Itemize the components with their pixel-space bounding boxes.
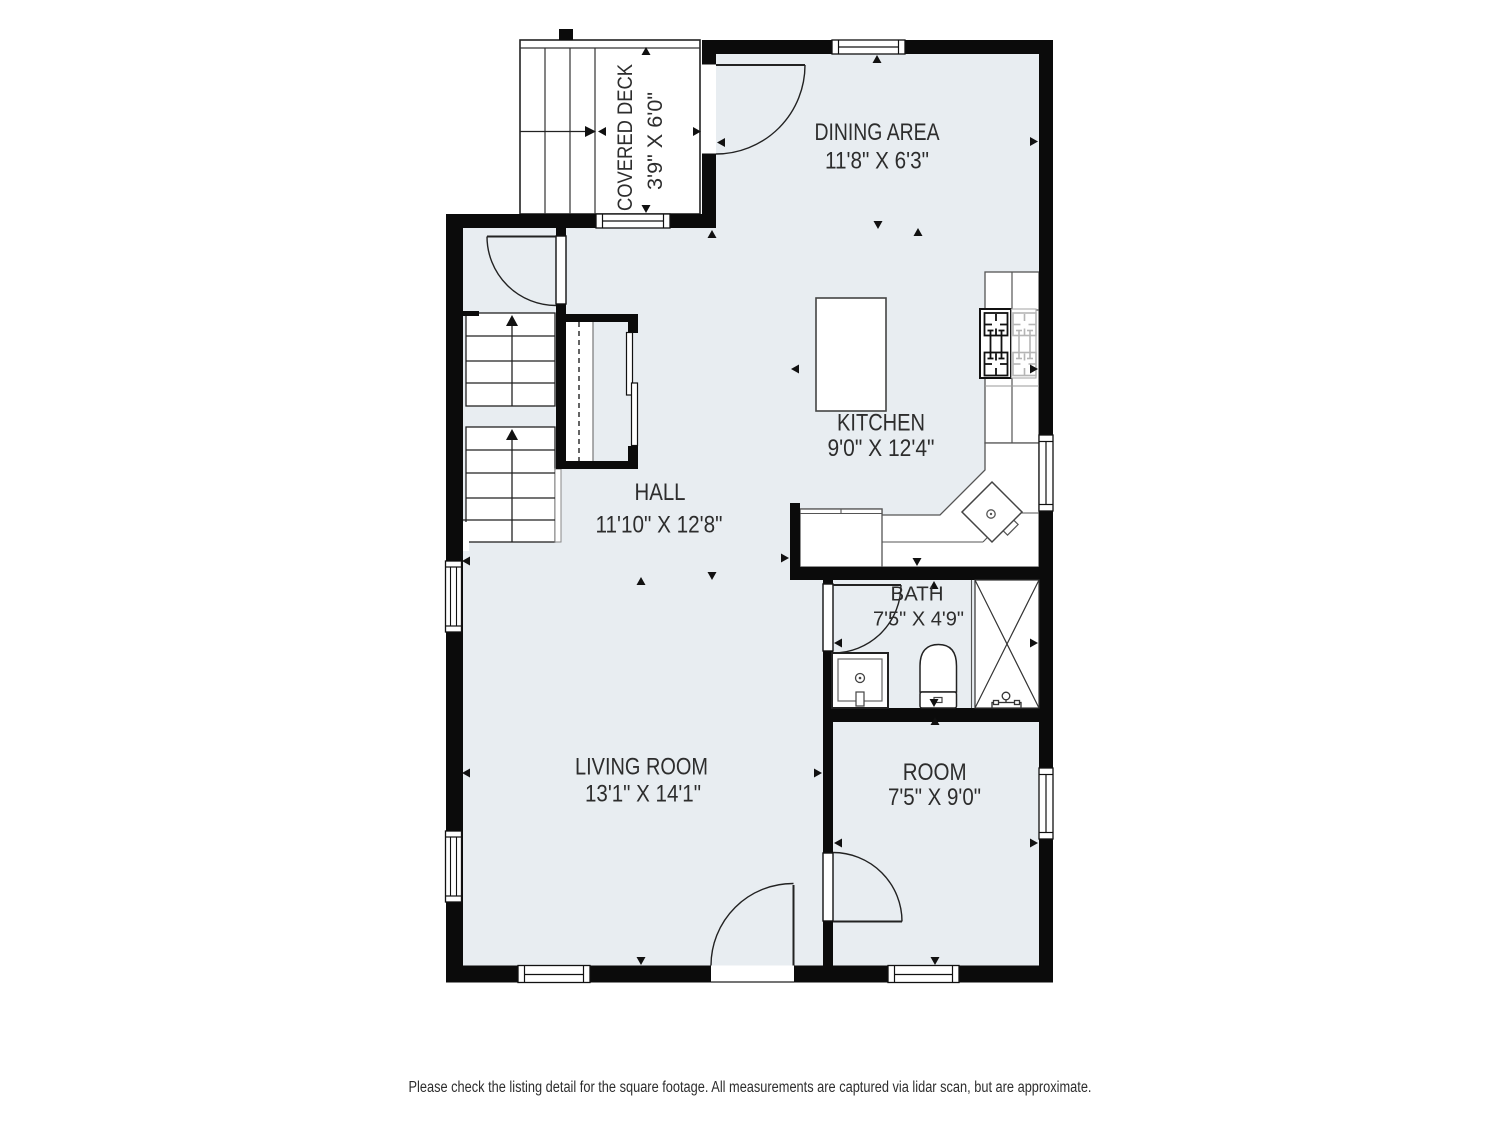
svg-text:13'1" X 14'1": 13'1" X 14'1" — [585, 781, 701, 808]
svg-text:COVERED DECK: COVERED DECK — [613, 63, 637, 211]
svg-text:Please check the listing detai: Please check the listing detail for the … — [409, 1079, 1092, 1096]
svg-text:11'8" X 6'3": 11'8" X 6'3" — [825, 148, 929, 175]
svg-text:11'10" X 12'8": 11'10" X 12'8" — [596, 512, 723, 539]
svg-text:7'5" X 9'0": 7'5" X 9'0" — [888, 784, 981, 811]
svg-text:ROOM: ROOM — [903, 759, 967, 786]
svg-text:BATH: BATH — [891, 584, 944, 606]
svg-text:DINING AREA: DINING AREA — [815, 119, 940, 146]
svg-text:LIVING ROOM: LIVING ROOM — [575, 754, 708, 781]
svg-text:3'9" X 6'0": 3'9" X 6'0" — [643, 92, 667, 190]
svg-text:KITCHEN: KITCHEN — [837, 410, 925, 437]
svg-text:7'5" X 4'9": 7'5" X 4'9" — [873, 609, 964, 631]
svg-text:9'0" X 12'4": 9'0" X 12'4" — [828, 435, 935, 462]
svg-text:HALL: HALL — [635, 479, 686, 506]
